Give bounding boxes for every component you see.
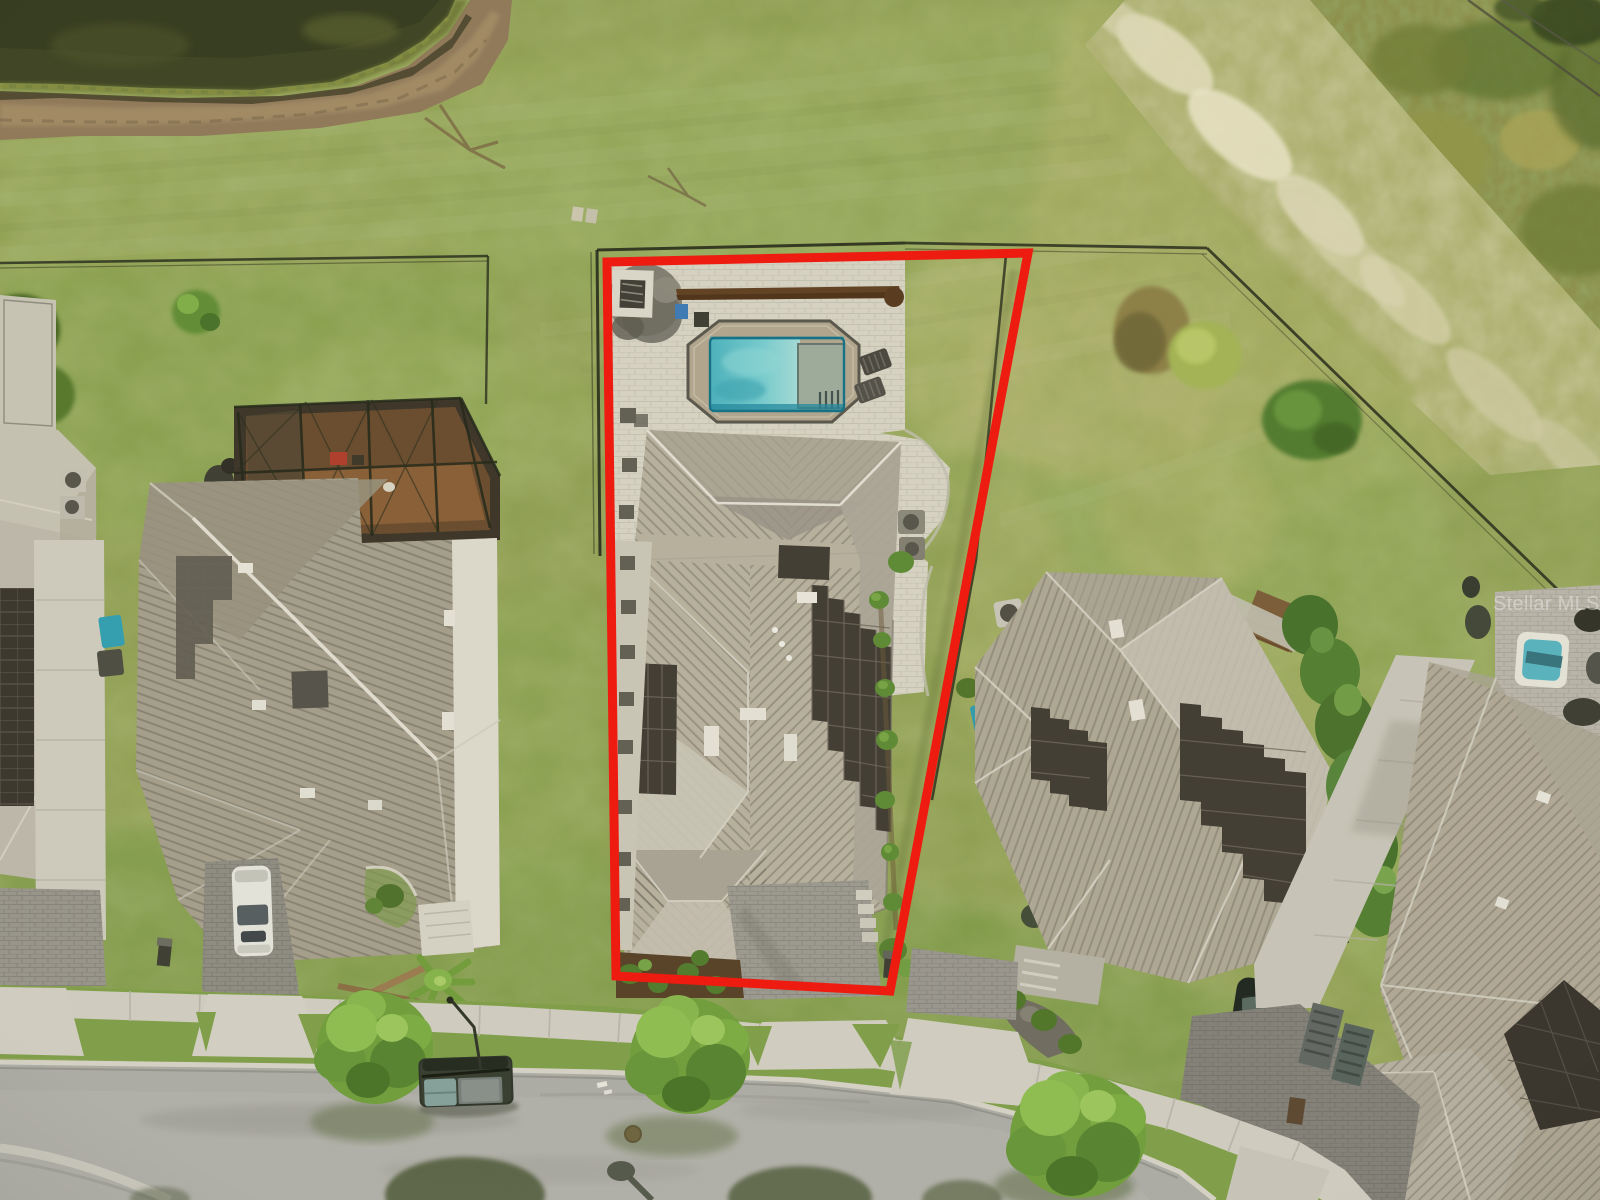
svg-text:Stellar MLS: Stellar MLS: [1493, 593, 1600, 615]
